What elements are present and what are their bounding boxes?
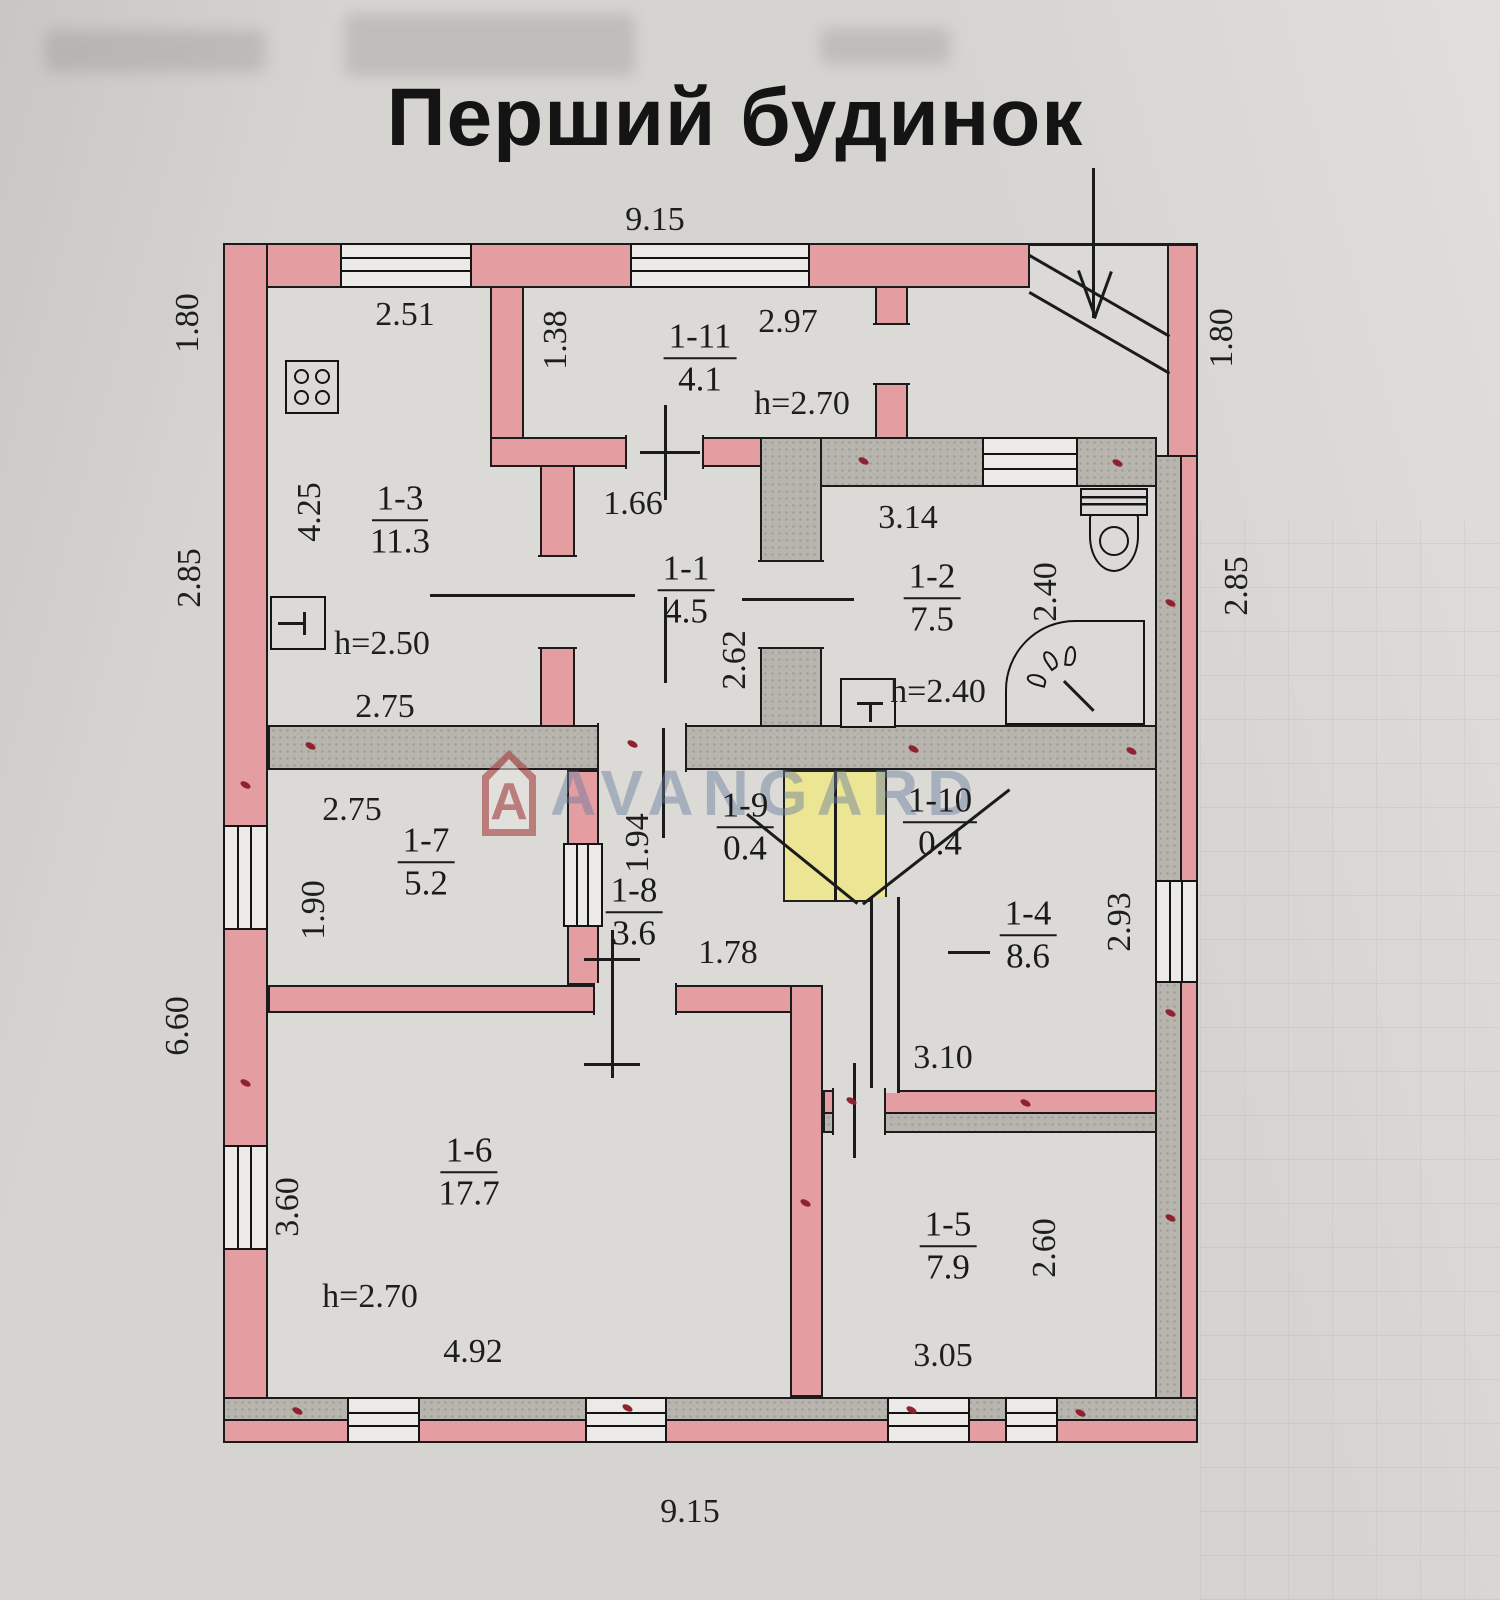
dim-r5-right: 2.60 [1026, 1218, 1064, 1278]
dim-left-mid: 2.85 [171, 548, 209, 608]
dim-r1-right: 2.62 [716, 630, 754, 690]
sink-icon-bath [840, 678, 896, 728]
dim-r5-bottom: 3.05 [913, 1337, 973, 1375]
room-label-1-2: 1-27.5 [904, 556, 961, 640]
wall-hall-room4 [870, 897, 900, 1093]
ink-bleedthrough-smudge [820, 28, 950, 64]
room-label-1-8: 1-83.6 [606, 870, 663, 954]
room-label-1-11: 1-114.1 [664, 316, 737, 400]
dim-top-width: 9.15 [625, 201, 685, 239]
window-left-room7 [223, 825, 268, 930]
wall-exterior-right-porch [1167, 243, 1198, 457]
dim-right-top: 1.80 [1203, 308, 1241, 368]
door-line-kitchen [430, 594, 635, 597]
dim-r3-left: 4.25 [291, 482, 329, 542]
dim-r3-bottom: 2.75 [355, 688, 415, 726]
door-room7 [563, 843, 603, 927]
dim-bottom-width: 9.15 [660, 1493, 720, 1531]
dim-r11-door: 1.66 [603, 485, 663, 523]
window-bottom-4 [1005, 1397, 1058, 1443]
dim-r2-top: 3.14 [878, 499, 938, 537]
door-opening-room6 [593, 983, 677, 1015]
dim-left-top: 1.80 [169, 293, 207, 353]
dim-left-bottom: 6.60 [159, 996, 197, 1056]
window-bottom-1 [347, 1397, 420, 1443]
wall-room6-room5 [790, 985, 823, 1397]
dim-r11-top: 2.97 [758, 303, 818, 341]
ink-bleedthrough-smudge [345, 14, 635, 76]
watermark-logo-icon: A [482, 750, 536, 836]
room-label-1-4: 1-48.6 [1000, 893, 1057, 977]
dim-r4-bottom: 3.10 [913, 1039, 973, 1077]
door-line-room5 [853, 1063, 856, 1158]
wall-room6-top [268, 985, 800, 1013]
dim-r11-left: 1.38 [537, 310, 575, 370]
dim-r6-height: h=2.70 [322, 1278, 418, 1316]
sink-icon-kitchen [270, 596, 326, 650]
window-left-room6 [223, 1145, 268, 1250]
dim-r7-left: 1.90 [295, 880, 333, 940]
scanned-floor-plan-page: { "title": "Перший будинок", "watermark"… [0, 0, 1500, 1600]
dim-r3-top: 2.51 [375, 296, 435, 334]
wall-room11-left [490, 286, 524, 441]
door-tick-room6-a [584, 958, 640, 961]
dim-r6-left: 3.60 [269, 1177, 307, 1237]
ink-bleedthrough-smudge [45, 30, 265, 72]
dim-r7-top: 2.75 [322, 791, 382, 829]
dim-tick-166 [640, 451, 700, 454]
door-opening-kitchen [538, 555, 577, 649]
dim-r2-right: 2.40 [1027, 562, 1065, 622]
room-label-1-6: 1-617.7 [438, 1130, 499, 1214]
window-top-hall [630, 243, 810, 288]
room-label-1-10: 1-100.4 [903, 780, 977, 864]
door-opening-room11 [873, 323, 910, 385]
room-label-1-5: 1-57.9 [920, 1204, 977, 1288]
dim-tick-room4 [948, 951, 990, 954]
dim-r8-bottom: 1.78 [698, 934, 758, 972]
door-opening-room5 [832, 1088, 886, 1135]
window-top-kitchen [340, 243, 472, 288]
dim-r6-bottom: 4.92 [443, 1333, 503, 1371]
graph-paper-bleedthrough [1200, 520, 1500, 1600]
page-title: Перший будинок [387, 71, 1084, 165]
dim-r3-height: h=2.50 [334, 625, 430, 663]
dim-r2-height: h=2.40 [890, 673, 986, 711]
room-label-1-7: 1-75.2 [398, 820, 455, 904]
window-bottom-3 [887, 1397, 970, 1443]
porch-open-edge [1030, 243, 1198, 246]
window-bath-transom [982, 437, 1078, 487]
dim-r8-left: 1.94 [619, 813, 657, 873]
door-line-bath [742, 598, 854, 601]
dim-right-mid: 2.85 [1218, 556, 1256, 616]
window-right-room4 [1155, 880, 1198, 983]
door-opening-bath [758, 560, 824, 649]
room-label-1-3: 1-311.3 [370, 478, 430, 562]
room-label-1-1: 1-14.5 [658, 548, 715, 632]
door-tick-room6-b [584, 1063, 640, 1066]
stove-icon [285, 360, 339, 414]
dim-r4-right: 2.93 [1101, 892, 1139, 952]
room-label-1-9: 1-90.4 [717, 785, 774, 869]
dim-r11-height: h=2.70 [754, 385, 850, 423]
